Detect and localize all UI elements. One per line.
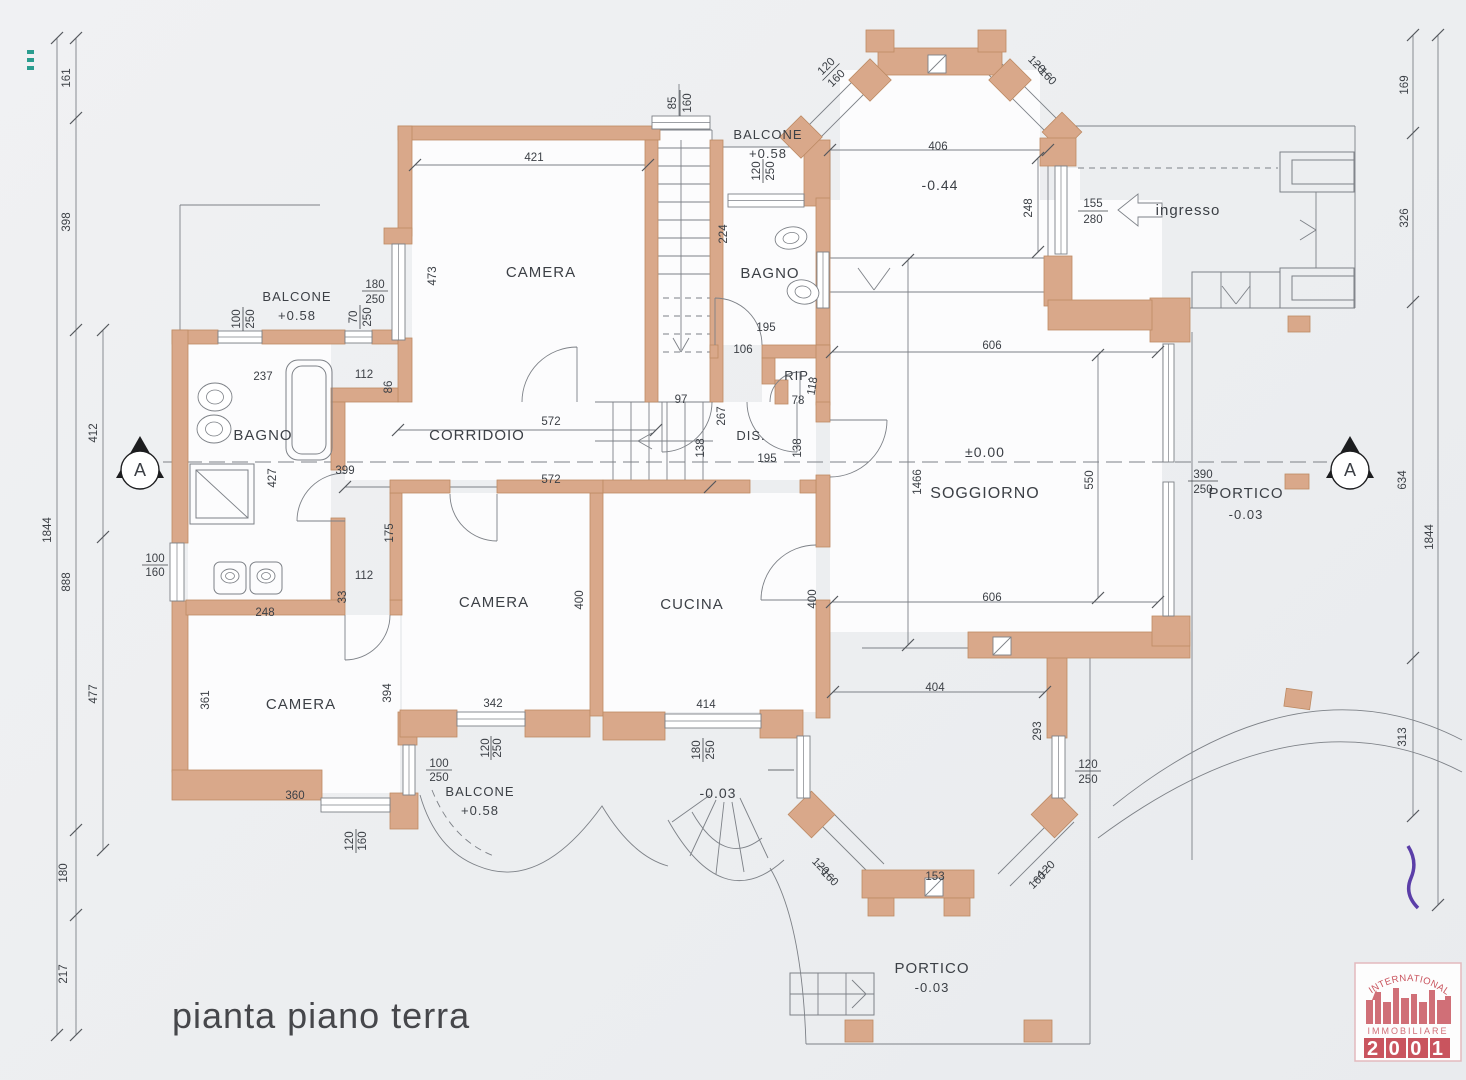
svg-text:CORRIDOIO: CORRIDOIO bbox=[429, 427, 525, 444]
svg-text:138: 138 bbox=[792, 438, 804, 457]
svg-text:120: 120 bbox=[480, 738, 492, 757]
svg-text:473: 473 bbox=[427, 266, 439, 285]
svg-text:390: 390 bbox=[1193, 469, 1212, 481]
svg-text:155: 155 bbox=[1083, 198, 1102, 210]
svg-text:1844: 1844 bbox=[42, 517, 54, 543]
svg-text:160: 160 bbox=[357, 831, 369, 850]
svg-text:100: 100 bbox=[231, 309, 243, 328]
svg-text:326: 326 bbox=[1399, 208, 1411, 227]
svg-text:ingresso: ingresso bbox=[1156, 202, 1221, 219]
svg-text:360: 360 bbox=[285, 790, 304, 802]
svg-text:404: 404 bbox=[925, 682, 945, 694]
svg-text:250: 250 bbox=[705, 740, 717, 759]
svg-text:97: 97 bbox=[675, 394, 688, 406]
svg-text:100: 100 bbox=[429, 758, 448, 770]
svg-text:224: 224 bbox=[718, 224, 730, 244]
svg-text:161: 161 bbox=[61, 68, 73, 87]
svg-text:250: 250 bbox=[429, 772, 448, 784]
scanned-floor-plan-sheet: AA16139841218448884771802171693266341844… bbox=[0, 0, 1466, 1080]
svg-text:550: 550 bbox=[1084, 470, 1096, 489]
svg-text:248: 248 bbox=[255, 607, 274, 619]
svg-text:414: 414 bbox=[696, 699, 716, 711]
svg-text:634: 634 bbox=[1397, 470, 1409, 490]
svg-text:RIP.: RIP. bbox=[784, 368, 812, 383]
svg-text:195: 195 bbox=[756, 322, 775, 334]
svg-text:PORTICO: PORTICO bbox=[894, 960, 969, 977]
svg-text:250: 250 bbox=[362, 307, 374, 326]
svg-text:250: 250 bbox=[365, 294, 384, 306]
svg-text:112: 112 bbox=[355, 570, 373, 582]
svg-text:CAMERA: CAMERA bbox=[506, 264, 576, 281]
svg-text:606: 606 bbox=[982, 340, 1001, 352]
svg-text:180: 180 bbox=[691, 740, 703, 759]
svg-text:CUCINA: CUCINA bbox=[660, 596, 724, 613]
svg-text:70: 70 bbox=[348, 311, 360, 324]
svg-text:399: 399 bbox=[335, 465, 354, 477]
svg-text:342: 342 bbox=[483, 698, 502, 710]
svg-text:78: 78 bbox=[792, 395, 805, 407]
svg-text:250: 250 bbox=[765, 161, 777, 180]
svg-text:A: A bbox=[1344, 460, 1356, 480]
svg-text:175: 175 bbox=[384, 523, 396, 542]
svg-text:169: 169 bbox=[1399, 75, 1411, 94]
svg-text:-0.03: -0.03 bbox=[915, 980, 950, 995]
svg-text:248: 248 bbox=[1023, 198, 1035, 217]
svg-text:280: 280 bbox=[1083, 214, 1102, 226]
svg-text:138: 138 bbox=[695, 438, 707, 457]
svg-text:237: 237 bbox=[253, 371, 272, 383]
svg-text:421: 421 bbox=[524, 152, 543, 164]
svg-text:120: 120 bbox=[1078, 759, 1097, 771]
svg-text:BALCONE: BALCONE bbox=[733, 127, 802, 142]
svg-text:394: 394 bbox=[382, 683, 394, 703]
plan-title: pianta piano terra bbox=[172, 995, 470, 1037]
svg-text:250: 250 bbox=[1078, 774, 1097, 786]
svg-text:CAMERA: CAMERA bbox=[459, 594, 529, 611]
svg-text:-0.03: -0.03 bbox=[1229, 507, 1264, 522]
svg-text:85: 85 bbox=[667, 97, 679, 110]
svg-text:+0.58: +0.58 bbox=[278, 308, 316, 323]
svg-text:DIS.: DIS. bbox=[736, 428, 765, 443]
svg-text:86: 86 bbox=[383, 381, 395, 394]
svg-text:BAGNO: BAGNO bbox=[233, 427, 292, 444]
svg-text:153: 153 bbox=[925, 871, 944, 883]
svg-text:CAMERA: CAMERA bbox=[266, 696, 336, 713]
svg-text:406: 406 bbox=[928, 141, 947, 153]
svg-text:106: 106 bbox=[733, 344, 752, 356]
svg-text:-0.44: -0.44 bbox=[922, 177, 959, 193]
svg-text:160: 160 bbox=[682, 93, 694, 112]
svg-text:+0.58: +0.58 bbox=[461, 803, 499, 818]
svg-text:BALCONE: BALCONE bbox=[262, 289, 331, 304]
svg-text:267: 267 bbox=[716, 406, 728, 425]
svg-text:400: 400 bbox=[574, 590, 586, 609]
svg-text:195: 195 bbox=[757, 453, 776, 465]
svg-text:313: 313 bbox=[1397, 727, 1409, 746]
svg-text:412: 412 bbox=[88, 423, 100, 442]
svg-text:100: 100 bbox=[145, 553, 164, 565]
svg-text:BAGNO: BAGNO bbox=[740, 265, 799, 282]
svg-text:888: 888 bbox=[61, 572, 73, 591]
svg-text:BALCONE: BALCONE bbox=[445, 784, 514, 799]
svg-text:250: 250 bbox=[492, 738, 504, 757]
svg-text:606: 606 bbox=[982, 592, 1001, 604]
svg-text:361: 361 bbox=[200, 690, 212, 709]
svg-text:250: 250 bbox=[245, 309, 257, 328]
svg-text:-0.03: -0.03 bbox=[700, 785, 737, 801]
svg-text:572: 572 bbox=[541, 474, 560, 486]
svg-text:477: 477 bbox=[88, 684, 100, 703]
svg-text:180: 180 bbox=[365, 279, 384, 291]
svg-text:SOGGIORNO: SOGGIORNO bbox=[930, 485, 1039, 502]
svg-text:+0.58: +0.58 bbox=[749, 146, 787, 161]
svg-text:PORTICO: PORTICO bbox=[1208, 485, 1283, 502]
svg-text:160: 160 bbox=[145, 567, 164, 579]
svg-text:A: A bbox=[134, 460, 146, 480]
svg-text:180: 180 bbox=[58, 863, 70, 882]
svg-text:400: 400 bbox=[807, 589, 819, 608]
svg-text:33: 33 bbox=[337, 591, 349, 604]
svg-text:112: 112 bbox=[355, 369, 373, 381]
floor-plan-svg: AA16139841218448884771802171693266341844… bbox=[0, 0, 1466, 1080]
svg-text:293: 293 bbox=[1032, 721, 1044, 740]
svg-text:1844: 1844 bbox=[1424, 524, 1436, 550]
svg-text:398: 398 bbox=[61, 212, 73, 231]
svg-text:120: 120 bbox=[344, 831, 356, 850]
svg-text:1466: 1466 bbox=[912, 469, 924, 495]
svg-text:572: 572 bbox=[541, 416, 560, 428]
svg-text:217: 217 bbox=[58, 964, 70, 983]
svg-text:±0.00: ±0.00 bbox=[965, 444, 1005, 460]
logo-line2: 2001 bbox=[1367, 1038, 1454, 1060]
svg-text:427: 427 bbox=[267, 468, 279, 487]
agency-logo: INTERNATIONAL IMMOBILIARE 2001 bbox=[1352, 960, 1464, 1064]
logo-line1: IMMOBILIARE bbox=[1367, 1026, 1448, 1036]
svg-text:120: 120 bbox=[751, 161, 763, 180]
